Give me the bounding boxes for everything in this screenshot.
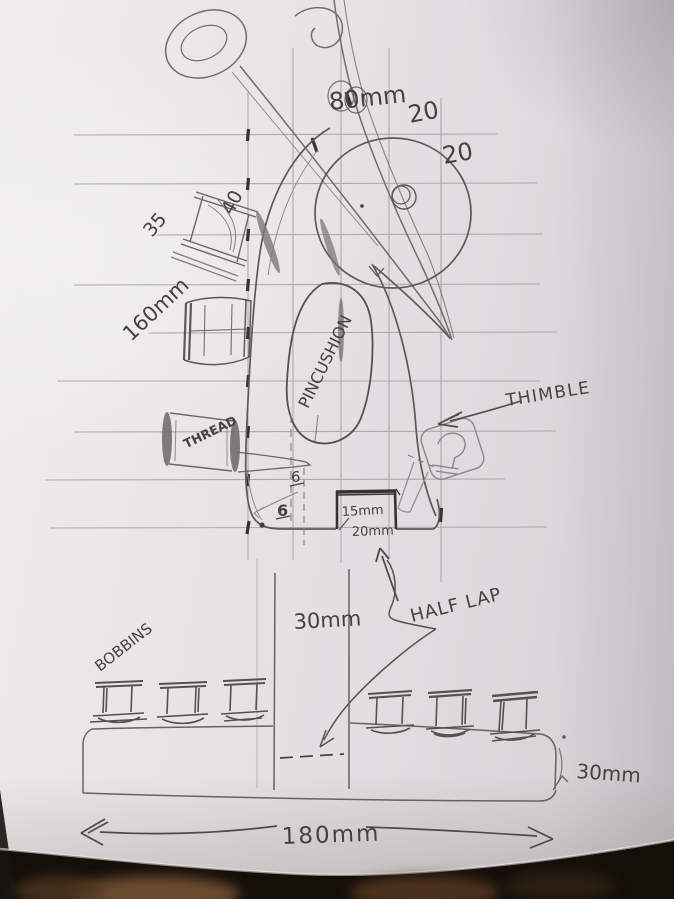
label-15mm: 15mm: [341, 503, 384, 520]
bobbin-row-sketch: [90, 679, 540, 741]
bobbin-sketch: [90, 681, 147, 722]
label-40: 40: [217, 187, 248, 219]
grid-lines: [45, 36, 557, 788]
corner-dot: [562, 735, 565, 738]
bird-beak-lower: [374, 266, 450, 338]
thimble-foot: [398, 462, 428, 512]
tilted-spool-sketch: [171, 192, 343, 281]
label-offset-b: 6: [277, 501, 288, 520]
label-20-b: 20: [440, 137, 475, 170]
label-thimble: THIMBLE: [504, 378, 592, 411]
spool-cap-left: [162, 412, 172, 466]
label-35: 35: [139, 209, 171, 242]
pencil-press-dot: [259, 522, 264, 527]
label-bobbins: BOBBINS: [91, 619, 155, 675]
flange-shade: [317, 217, 342, 276]
up-arrow-shaft: [382, 556, 398, 601]
pencil-sketch: 80mm 20 20 35 40 160mm PINCUSHION THREAD…: [0, 0, 674, 899]
bobbin-sketch: [157, 682, 208, 723]
finger-blob: [15, 876, 105, 899]
bobbin-sketch: [366, 691, 414, 733]
bird-bottom-right: [396, 499, 439, 529]
scissors-handle-loop: [154, 0, 257, 91]
label-offset-a: 6: [291, 468, 301, 486]
pincushion-flick: [315, 415, 318, 441]
label-160mm: 160mm: [118, 273, 194, 346]
label-20-a: 20: [406, 96, 441, 129]
label-180mm: 180mm: [281, 821, 381, 850]
label-30mm-post: 30mm: [293, 606, 362, 634]
label-20mm: 20mm: [352, 524, 394, 540]
label-half-lap: HALF LAP: [408, 584, 504, 627]
label-80mm: 80mm: [328, 80, 408, 116]
long-arrow-head: [320, 730, 334, 747]
label-30mm-base: 30mm: [576, 759, 642, 787]
bird-breast-curve: [372, 264, 436, 516]
desk-shadow-blob: [505, 872, 615, 899]
break-dashes: [280, 754, 344, 758]
pivot-dot: [360, 204, 364, 208]
scissors-handle-loop-inner: [175, 18, 232, 67]
post-board: [274, 569, 349, 790]
label-pincushion: PINCUSHION: [294, 312, 355, 411]
half-lap-annotation: [320, 548, 436, 747]
bobbin-sketch: [221, 679, 268, 721]
base-board: [83, 723, 568, 801]
long-arrow-shaft: [324, 629, 436, 740]
sketch-photo: 80mm 20 20 35 40 160mm PINCUSHION THREAD…: [0, 0, 674, 899]
bird-eye-outer: [392, 185, 416, 209]
